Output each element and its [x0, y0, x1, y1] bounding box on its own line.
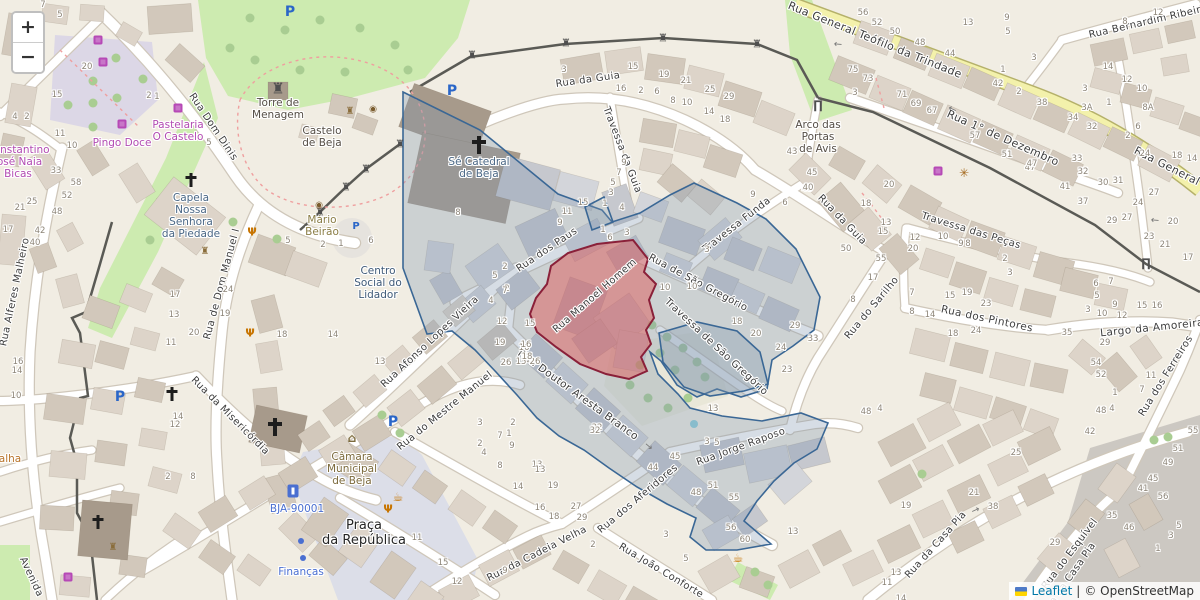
openstreetmap-link[interactable]: © OpenStreetMap	[1084, 584, 1194, 598]
attribution-bar: Leaflet | © OpenStreetMap	[1009, 582, 1200, 600]
zoom-control: + −	[11, 11, 45, 74]
map-tiles	[0, 0, 1200, 600]
zoom-out-button[interactable]: −	[13, 43, 43, 72]
ukraine-flag-icon	[1015, 587, 1027, 596]
zoom-in-button[interactable]: +	[13, 13, 43, 43]
leaflet-link[interactable]: Leaflet	[1031, 584, 1072, 598]
leaflet-map[interactable]: Rua Dom DinisRua de Dom Manuel IRua Alfe…	[0, 0, 1200, 600]
attribution-separator: |	[1076, 584, 1080, 598]
